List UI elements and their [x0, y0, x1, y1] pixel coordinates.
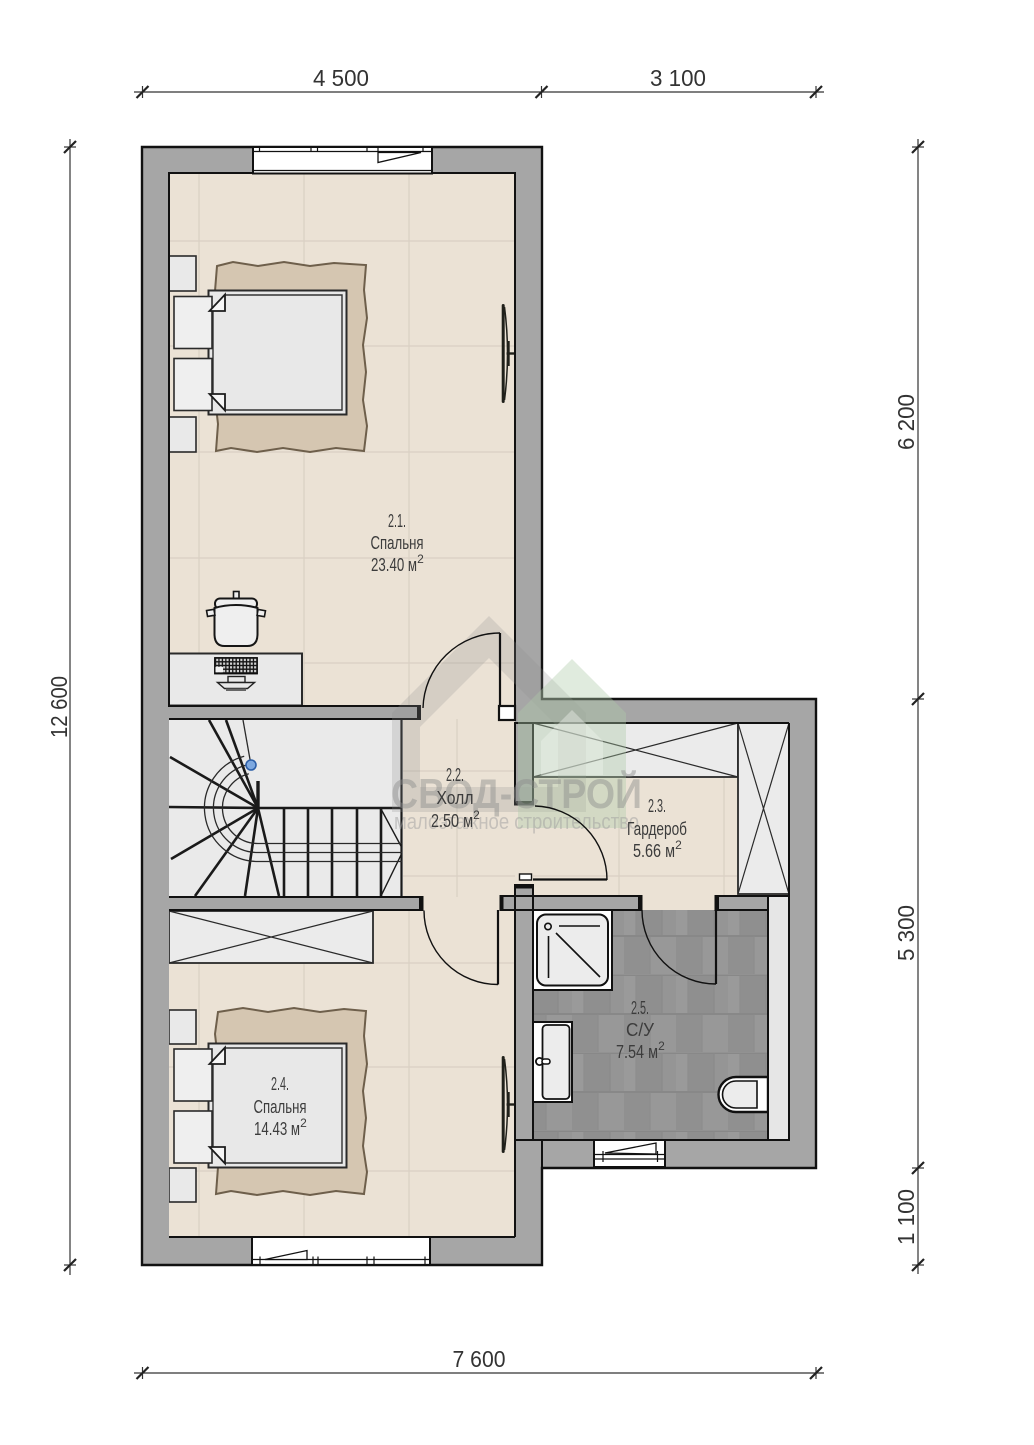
svg-text:2: 2: [417, 552, 424, 566]
svg-text:2: 2: [300, 1116, 307, 1130]
svg-text:14.43 м: 14.43 м: [254, 1119, 300, 1139]
svg-text:2.4.: 2.4.: [271, 1074, 289, 1094]
svg-text:4 500: 4 500: [313, 65, 369, 91]
svg-text:Гардероб: Гардероб: [627, 819, 687, 839]
svg-text:5 300: 5 300: [893, 905, 919, 961]
svg-text:23.40 м: 23.40 м: [371, 555, 417, 575]
svg-text:Холл: Холл: [437, 788, 474, 808]
svg-text:Спальня: Спальня: [371, 533, 424, 553]
svg-text:5.66 м: 5.66 м: [633, 841, 675, 861]
svg-text:2: 2: [675, 838, 682, 852]
svg-text:6 200: 6 200: [893, 394, 919, 450]
svg-text:С/У: С/У: [626, 1020, 655, 1040]
svg-text:2.5.: 2.5.: [631, 998, 649, 1018]
svg-text:2.3.: 2.3.: [648, 796, 666, 816]
svg-text:7 600: 7 600: [453, 1346, 506, 1372]
svg-text:Спальня: Спальня: [254, 1097, 307, 1117]
svg-text:2.2.: 2.2.: [446, 765, 464, 785]
svg-text:2.50 м: 2.50 м: [431, 811, 473, 831]
svg-text:7.54 м: 7.54 м: [616, 1042, 658, 1062]
svg-text:3 100: 3 100: [650, 65, 706, 91]
svg-text:2: 2: [473, 808, 480, 822]
svg-text:2: 2: [658, 1039, 665, 1053]
svg-text:2.1.: 2.1.: [388, 511, 406, 531]
svg-text:1 100: 1 100: [893, 1189, 919, 1245]
svg-text:12 600: 12 600: [46, 676, 72, 738]
